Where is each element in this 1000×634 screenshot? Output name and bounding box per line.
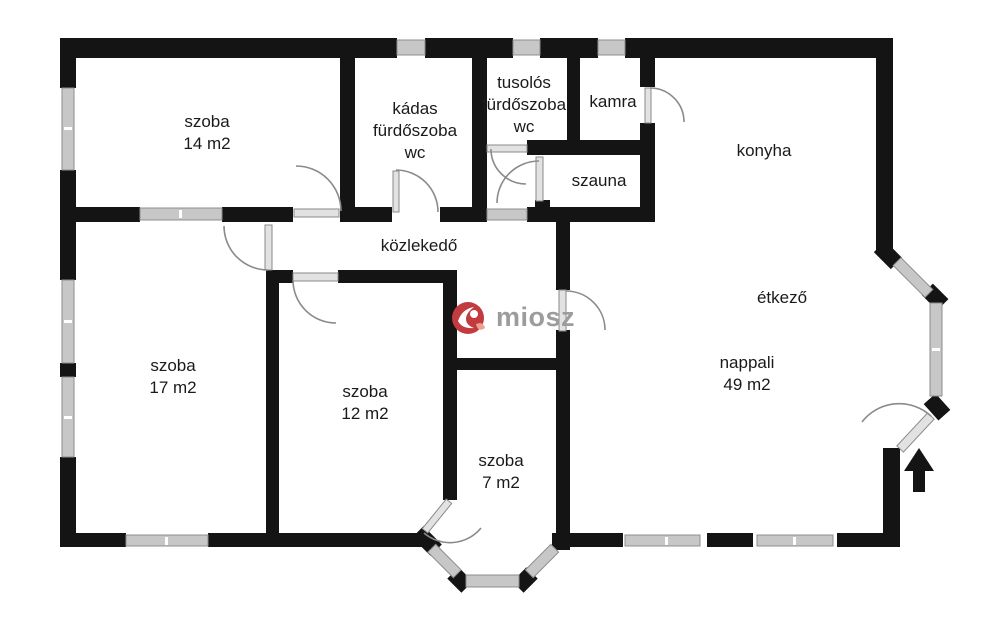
room-name: szoba [183,111,230,133]
room-label-kozlekedo: közlekedő [381,235,458,257]
miosz-logo-icon [452,302,485,334]
room-label-nappali: nappali 49 m2 [720,352,775,396]
room-label-kamra: kamra [589,91,636,113]
room-area: 17 m2 [149,377,196,399]
room-label-konyha: konyha [737,140,792,162]
room-name: kamra [589,91,636,113]
room-area: 49 m2 [720,374,775,396]
room-name: fürdőszoba [482,94,566,116]
room-area: 12 m2 [341,403,388,425]
room-label-etkezo: étkező [757,287,807,309]
entrance-arrow-icon [904,448,934,492]
room-label-szoba7: szoba 7 m2 [478,450,523,494]
room-name: szoba [149,355,196,377]
doors-layer [224,88,934,543]
room-label-szoba12: szoba 12 m2 [341,381,388,425]
room-name: szauna [572,170,627,192]
room-name: szoba [478,450,523,472]
room-name: kádas [373,98,457,120]
room-name: étkező [757,287,807,309]
room-name: fürdőszoba [373,120,457,142]
room-name: közlekedő [381,235,458,257]
room-label-szoba17: szoba 17 m2 [149,355,196,399]
room-name: tusolós [482,72,566,94]
room-area: 7 m2 [478,472,523,494]
room-label-szoba14: szoba 14 m2 [183,111,230,155]
room-name: nappali [720,352,775,374]
miosz-watermark: miosz [490,304,575,331]
room-name: wc [482,116,566,138]
room-label-szauna: szauna [572,170,627,192]
miosz-logo-text: miosz [496,304,575,331]
room-area: 14 m2 [183,133,230,155]
room-name: szoba [341,381,388,403]
room-label-tusolos-furdoszoba: tusolós fürdőszoba wc [482,72,566,138]
room-name: konyha [737,140,792,162]
room-label-kadas-furdoszoba: kádas fürdőszoba wc [373,98,457,164]
room-name: wc [373,142,457,164]
floorplan-page: szoba 14 m2 kádas fürdőszoba wc tusolós … [0,0,1000,634]
